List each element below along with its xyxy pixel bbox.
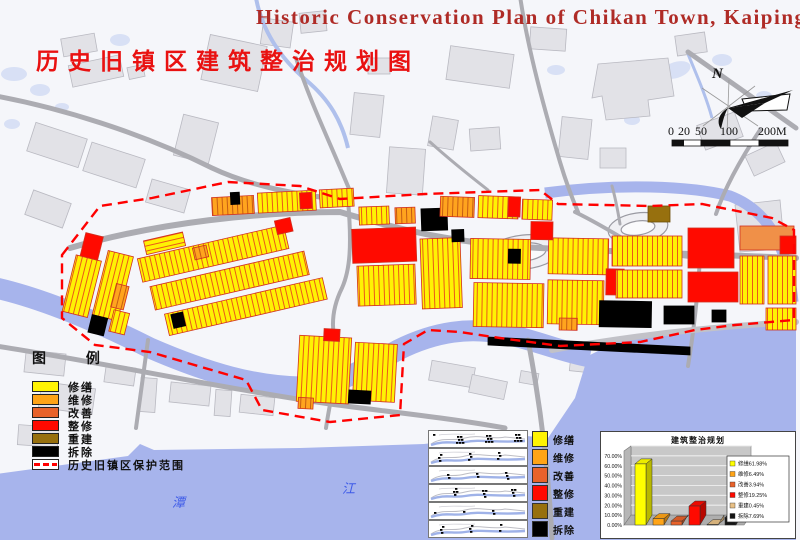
svg-text:拆除7.69%: 拆除7.69% (738, 512, 764, 520)
inset-minimap (428, 484, 528, 502)
inset-minimap (428, 430, 528, 448)
inset-swatch-icon (532, 467, 548, 483)
svg-text:重建0.45%: 重建0.45% (738, 502, 764, 510)
svg-text:60.00%: 60.00% (604, 464, 622, 470)
svg-text:0.00%: 0.00% (607, 523, 622, 529)
inset-label: 改善 (553, 468, 575, 483)
scale-tick-50: 50 (695, 124, 707, 139)
river-label-jiang: 江 (342, 478, 355, 497)
svg-text:修缮61.98%: 修缮61.98% (738, 460, 767, 468)
svg-text:整修19.25%: 整修19.25% (738, 491, 767, 499)
inset-minimap (428, 502, 528, 520)
legend-rows: 修缮维修改善整修重建拆除 (32, 380, 232, 458)
legend-row-boundary: 历史旧镇区保护范围 (32, 458, 232, 471)
svg-text:20.00%: 20.00% (604, 503, 622, 509)
scale-tick-100: 100 (720, 124, 738, 139)
inset-row-0: 修缮 (428, 430, 598, 448)
inset-label: 重建 (553, 504, 575, 519)
legend-row-2: 改善 (32, 406, 232, 419)
map-title-english: Historic Conservation Plan of Chikan Tow… (256, 5, 800, 30)
map-title-chinese: 历史旧镇区建筑整治规划图 (36, 42, 420, 76)
legend-swatch-icon (32, 407, 59, 418)
legend-row-3: 整修 (32, 419, 232, 432)
renovation-bar-chart: 70.00%60.00%50.00%40.00%30.00%20.00%10.0… (601, 432, 795, 538)
legend-swatch-icon (32, 420, 59, 431)
legend-swatch-icon (32, 381, 59, 392)
legend-row-1: 维修 (32, 393, 232, 406)
inset-swatch-icon (532, 431, 548, 447)
scale-tick-0: 0 (668, 124, 674, 139)
legend-row-4: 重建 (32, 432, 232, 445)
inset-label: 修缮 (553, 432, 575, 447)
renovation-chart-panel: 建筑整治规划 70.00%60.00%50.00%40.00%30.00%20.… (600, 431, 796, 539)
boundary-swatch-icon (32, 459, 59, 470)
scale-tick-20: 20 (678, 124, 690, 139)
inset-row-4: 重建 (428, 502, 598, 520)
svg-text:维修6.49%: 维修6.49% (738, 470, 764, 478)
inset-row-3: 整修 (428, 484, 598, 502)
legend-swatch-icon (32, 433, 59, 444)
legend-swatch-icon (32, 446, 59, 457)
legend-row-0: 修缮 (32, 380, 232, 393)
scale-bar (672, 140, 788, 146)
inset-label: 拆除 (553, 522, 575, 537)
svg-text:50.00%: 50.00% (604, 474, 622, 480)
inset-row-5: 拆除 (428, 520, 598, 538)
inset-row-2: 改善 (428, 466, 598, 484)
svg-text:70.00%: 70.00% (604, 454, 622, 460)
legend-boundary-label: 历史旧镇区保护范围 (68, 457, 185, 473)
river-label-tan: 潭 (172, 492, 185, 511)
svg-text:10.00%: 10.00% (604, 513, 622, 519)
inset-map-panels: 修缮维修改善整修重建拆除 (428, 430, 598, 538)
svg-text:30.00%: 30.00% (604, 493, 622, 499)
legend-swatch-icon (32, 394, 59, 405)
inset-swatch-icon (532, 485, 548, 501)
north-label: N (712, 66, 723, 83)
inset-swatch-icon (532, 449, 548, 465)
inset-minimap (428, 466, 528, 484)
map-legend: 图 例 修缮维修改善整修重建拆除 历史旧镇区保护范围 (32, 348, 232, 471)
svg-text:改善3.94%: 改善3.94% (738, 481, 764, 489)
conservation-plan-map: Historic Conservation Plan of Chikan Tow… (0, 0, 800, 540)
inset-swatch-icon (532, 521, 548, 537)
inset-minimap (428, 520, 528, 538)
scale-tick-200: 200M (758, 124, 787, 139)
inset-swatch-icon (532, 503, 548, 519)
inset-minimap (428, 448, 528, 466)
inset-label: 维修 (553, 450, 575, 465)
inset-label: 整修 (553, 486, 575, 501)
legend-header: 图 例 (32, 348, 232, 368)
svg-text:40.00%: 40.00% (604, 484, 622, 490)
inset-row-1: 维修 (428, 448, 598, 466)
